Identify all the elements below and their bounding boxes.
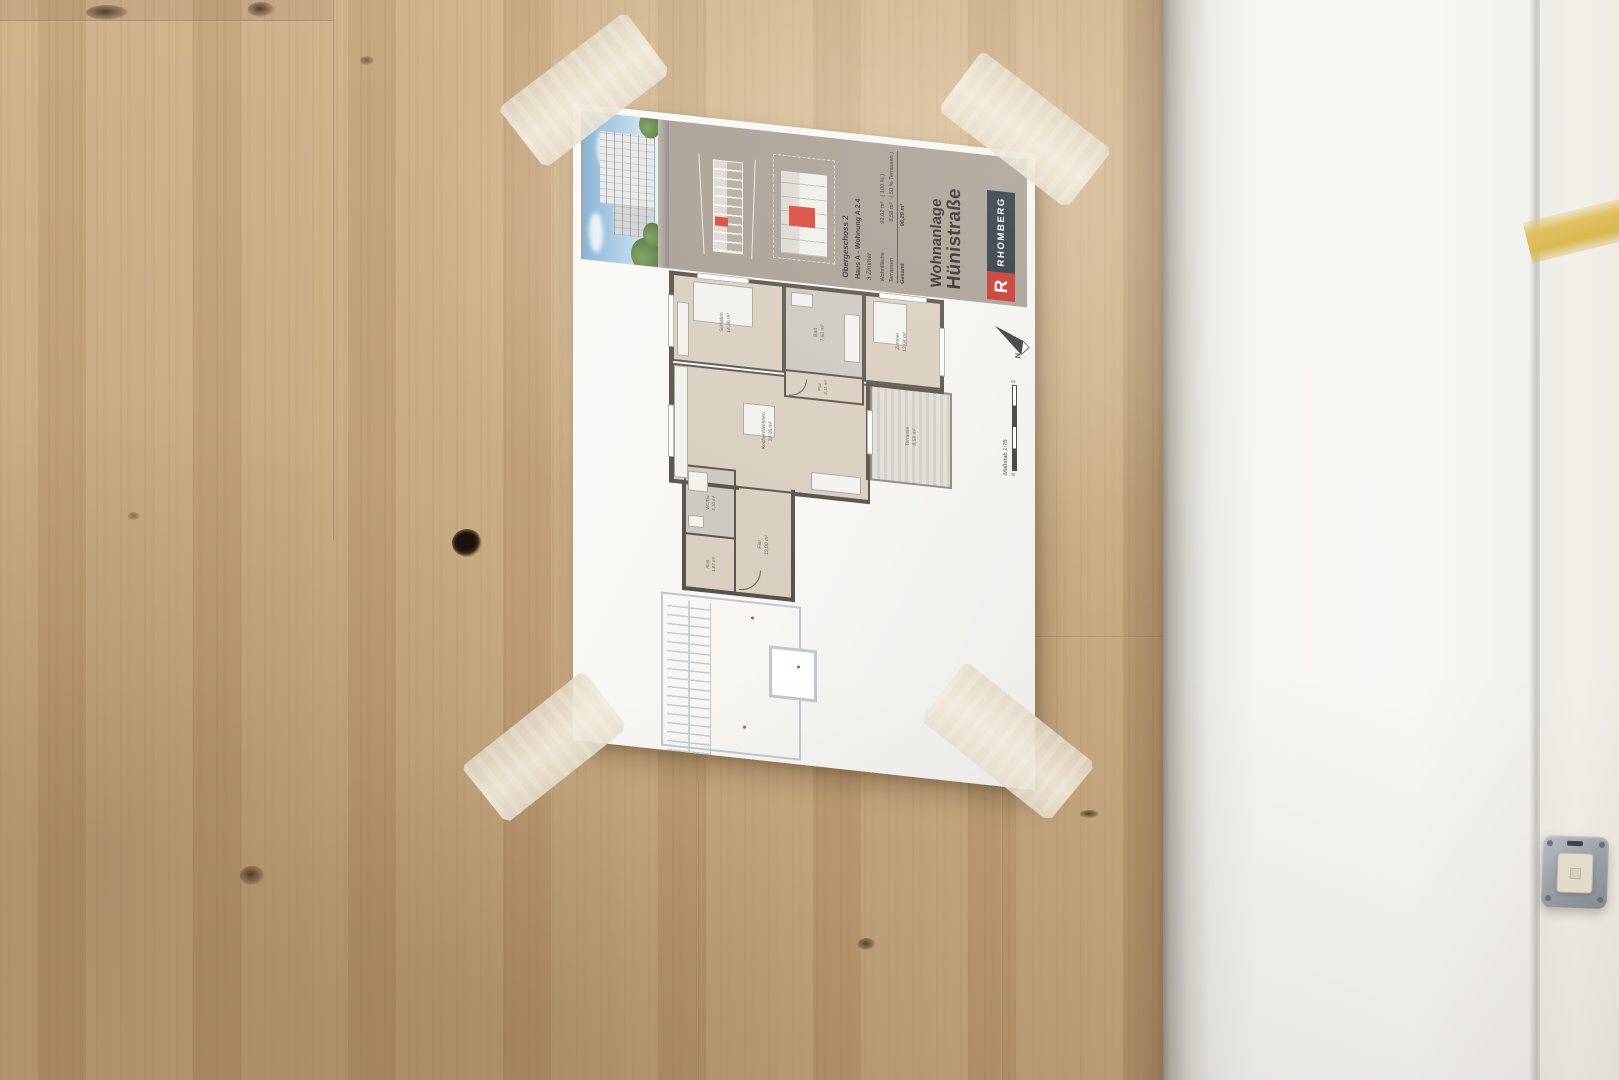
kitchen-counter xyxy=(674,365,688,479)
plank-seam xyxy=(697,780,699,1080)
floor-label: Obergeschoss 2 xyxy=(841,145,850,278)
window xyxy=(939,328,945,377)
room-area: 14,36 m² xyxy=(726,291,733,356)
north-arrow-icon xyxy=(991,321,1031,359)
room-label: Abst. 1,87 m² xyxy=(705,531,716,596)
room-label: WC/Du 4,10 m² xyxy=(705,470,716,535)
wood-knot xyxy=(128,512,140,520)
cloud xyxy=(589,212,603,254)
room-label: Schlafen 14,36 m² xyxy=(719,290,732,355)
window xyxy=(668,294,674,347)
room-area: 12,04 m² xyxy=(902,310,909,375)
room-area: 1,87 m² xyxy=(711,532,717,597)
drill-hole xyxy=(452,529,482,557)
room-label: Flur 13,00 m² xyxy=(757,512,770,577)
north-arrow: N xyxy=(991,321,1031,359)
unit-marker xyxy=(715,216,728,226)
area-value: 96,29 m² xyxy=(899,203,908,240)
wall-right-face xyxy=(1540,0,1619,1080)
unit-highlight xyxy=(789,205,815,228)
white-wall xyxy=(1163,0,1619,1080)
area-note: ( 50 % Terrassen ) xyxy=(888,150,897,203)
area-value: 92,02 m² xyxy=(879,201,888,238)
plan-marker xyxy=(743,725,746,728)
unit-label: Haus A - Wohnung A.2.4 xyxy=(855,147,862,280)
logo-mark: R xyxy=(987,271,1015,302)
area-row-total: Gesamt 96,29 m² xyxy=(897,151,908,284)
building-main xyxy=(600,131,655,209)
plan-marker xyxy=(797,665,800,668)
logo-wordmark: RHOMBERG xyxy=(987,190,1015,274)
wood-knot xyxy=(1080,810,1099,818)
street xyxy=(658,119,669,268)
plank-seam xyxy=(0,20,334,22)
room-label: Kochen/Wohnen 33,05 m² xyxy=(761,398,774,463)
wardrobe xyxy=(677,301,689,356)
north-label: N xyxy=(1015,353,1022,359)
plank-seam xyxy=(332,0,334,540)
unit-info-block: Obergeschoss 2 Haus A - Wohnung A.2.4 3 … xyxy=(841,145,908,284)
toilet xyxy=(688,514,704,528)
photo-scene: Obergeschoss 2 Haus A - Wohnung A.2.4 3 … xyxy=(0,0,1619,1080)
area-note xyxy=(899,151,908,204)
area-row: Wohnfläche 92,02 m² ( 100 % ) xyxy=(879,149,888,282)
plan-marker xyxy=(751,616,754,619)
rocker-center xyxy=(1570,868,1581,879)
room-label: Terrasse 8,58 m² xyxy=(905,404,918,469)
scale-bar xyxy=(1012,385,1017,472)
washbasin xyxy=(791,292,813,308)
room-count-label: 3 Zimmer xyxy=(866,148,873,281)
wood-knot xyxy=(240,866,264,885)
stair-divider xyxy=(688,600,690,752)
terrace-door xyxy=(867,410,873,455)
wall xyxy=(791,490,795,602)
bathtub xyxy=(844,313,860,363)
scale-zero: 0 xyxy=(1011,473,1017,477)
wood-knot xyxy=(248,2,274,17)
building-photo xyxy=(583,111,669,268)
rhomberg-logo: R RHOMBERG xyxy=(987,190,1015,302)
area-label: Wohnfläche xyxy=(879,237,888,282)
scale-label: Maßstab 1:75 xyxy=(1003,365,1009,476)
light-switch-insert xyxy=(1541,835,1609,909)
area-label: Gesamt xyxy=(899,239,908,284)
area-row: Terrassen 8,58 m² ( 50 % Terrassen ) xyxy=(888,150,897,283)
wood-knot xyxy=(86,5,128,20)
site-building-footprint xyxy=(713,159,743,254)
switch-rocker xyxy=(1556,852,1593,893)
area-value: 8,58 m² xyxy=(888,202,897,239)
scale-bar-group: Maßstab 1:75 0 5 xyxy=(1003,365,1017,477)
room-label: Flur 4,11 m² xyxy=(817,355,828,420)
elevator-shaft xyxy=(769,645,817,702)
mounting-slot xyxy=(1567,841,1583,847)
room-area: 4,10 m² xyxy=(711,471,717,536)
floor-key-plan xyxy=(773,154,835,265)
area-label: Terrassen xyxy=(888,238,897,283)
wood-knot xyxy=(858,938,875,950)
scale-bar-row: 0 5 xyxy=(1011,366,1017,477)
scale-five: 5 xyxy=(1011,380,1017,384)
wall xyxy=(682,480,686,590)
site-boundary xyxy=(751,160,755,260)
area-note: ( 100 % ) xyxy=(879,149,888,202)
room-area: 33,05 m² xyxy=(768,399,775,464)
site-boundary xyxy=(698,154,704,254)
room-label: Zimmer 12,04 m² xyxy=(895,309,908,374)
project-title-line1: Wohnanlage xyxy=(929,185,945,288)
project-title-line2: Hünistraße xyxy=(945,187,965,290)
room-area: 4,11 m² xyxy=(823,355,829,420)
room-area: 13,00 m² xyxy=(764,513,771,578)
room-area: 8,58 m² xyxy=(912,405,919,470)
site-key-plan xyxy=(697,153,761,260)
wood-knot xyxy=(360,56,374,65)
wood-plank xyxy=(0,0,334,20)
project-title: Wohnanlage Hünistraße xyxy=(929,185,965,290)
